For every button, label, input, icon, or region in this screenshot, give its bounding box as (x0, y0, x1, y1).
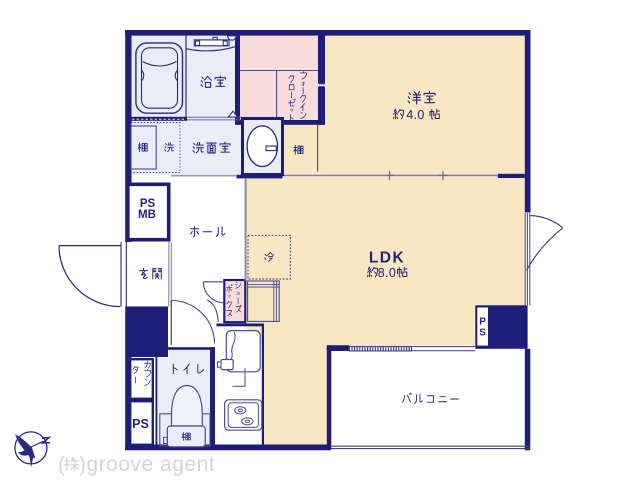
svg-text:)groove agent: )groove agent (79, 453, 215, 476)
svg-text:(: ( (58, 453, 65, 476)
svg-text:P: P (479, 317, 486, 328)
svg-text:8.0: 8.0 (378, 266, 397, 280)
svg-text:PS: PS (132, 417, 149, 431)
svg-text:MB: MB (138, 209, 156, 221)
svg-text:LDK: LDK (369, 250, 405, 267)
svg-text:S: S (479, 328, 486, 339)
svg-text:4.0: 4.0 (406, 108, 425, 122)
